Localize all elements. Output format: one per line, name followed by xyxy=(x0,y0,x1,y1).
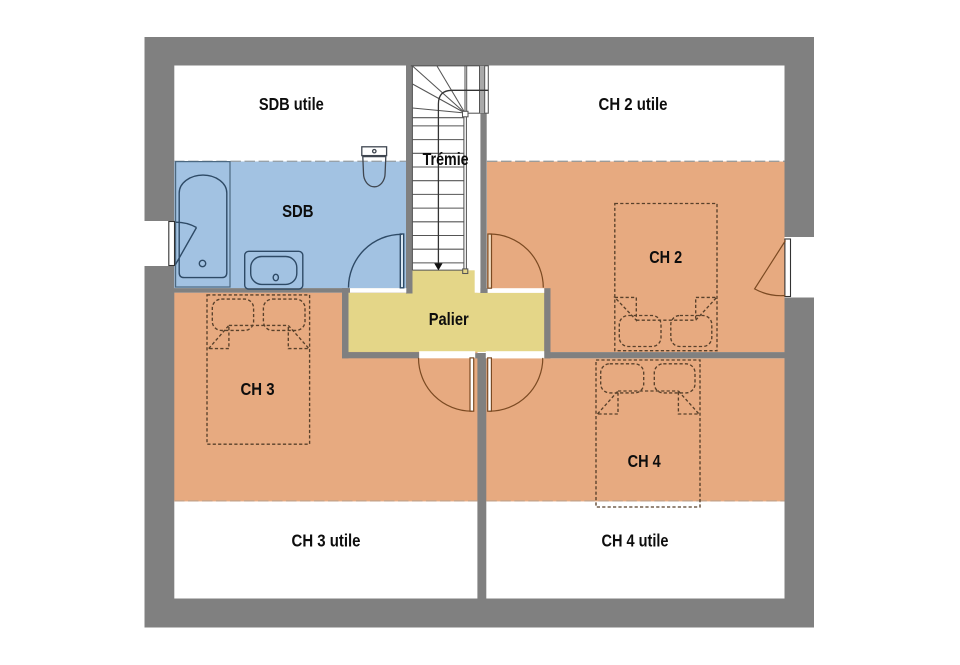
svg-text:SDB utile: SDB utile xyxy=(259,95,324,115)
svg-text:CH 2 utile: CH 2 utile xyxy=(599,95,668,114)
svg-text:Palier: Palier xyxy=(429,310,470,330)
svg-text:CH 3: CH 3 xyxy=(240,380,274,399)
svg-text:SDB: SDB xyxy=(282,202,313,221)
svg-text:Trémie: Trémie xyxy=(423,151,469,170)
svg-text:CH 4: CH 4 xyxy=(628,452,661,472)
svg-text:CH 2: CH 2 xyxy=(649,248,682,268)
svg-text:CH 4 utile: CH 4 utile xyxy=(602,531,669,551)
svg-text:CH 3 utile: CH 3 utile xyxy=(292,531,361,550)
